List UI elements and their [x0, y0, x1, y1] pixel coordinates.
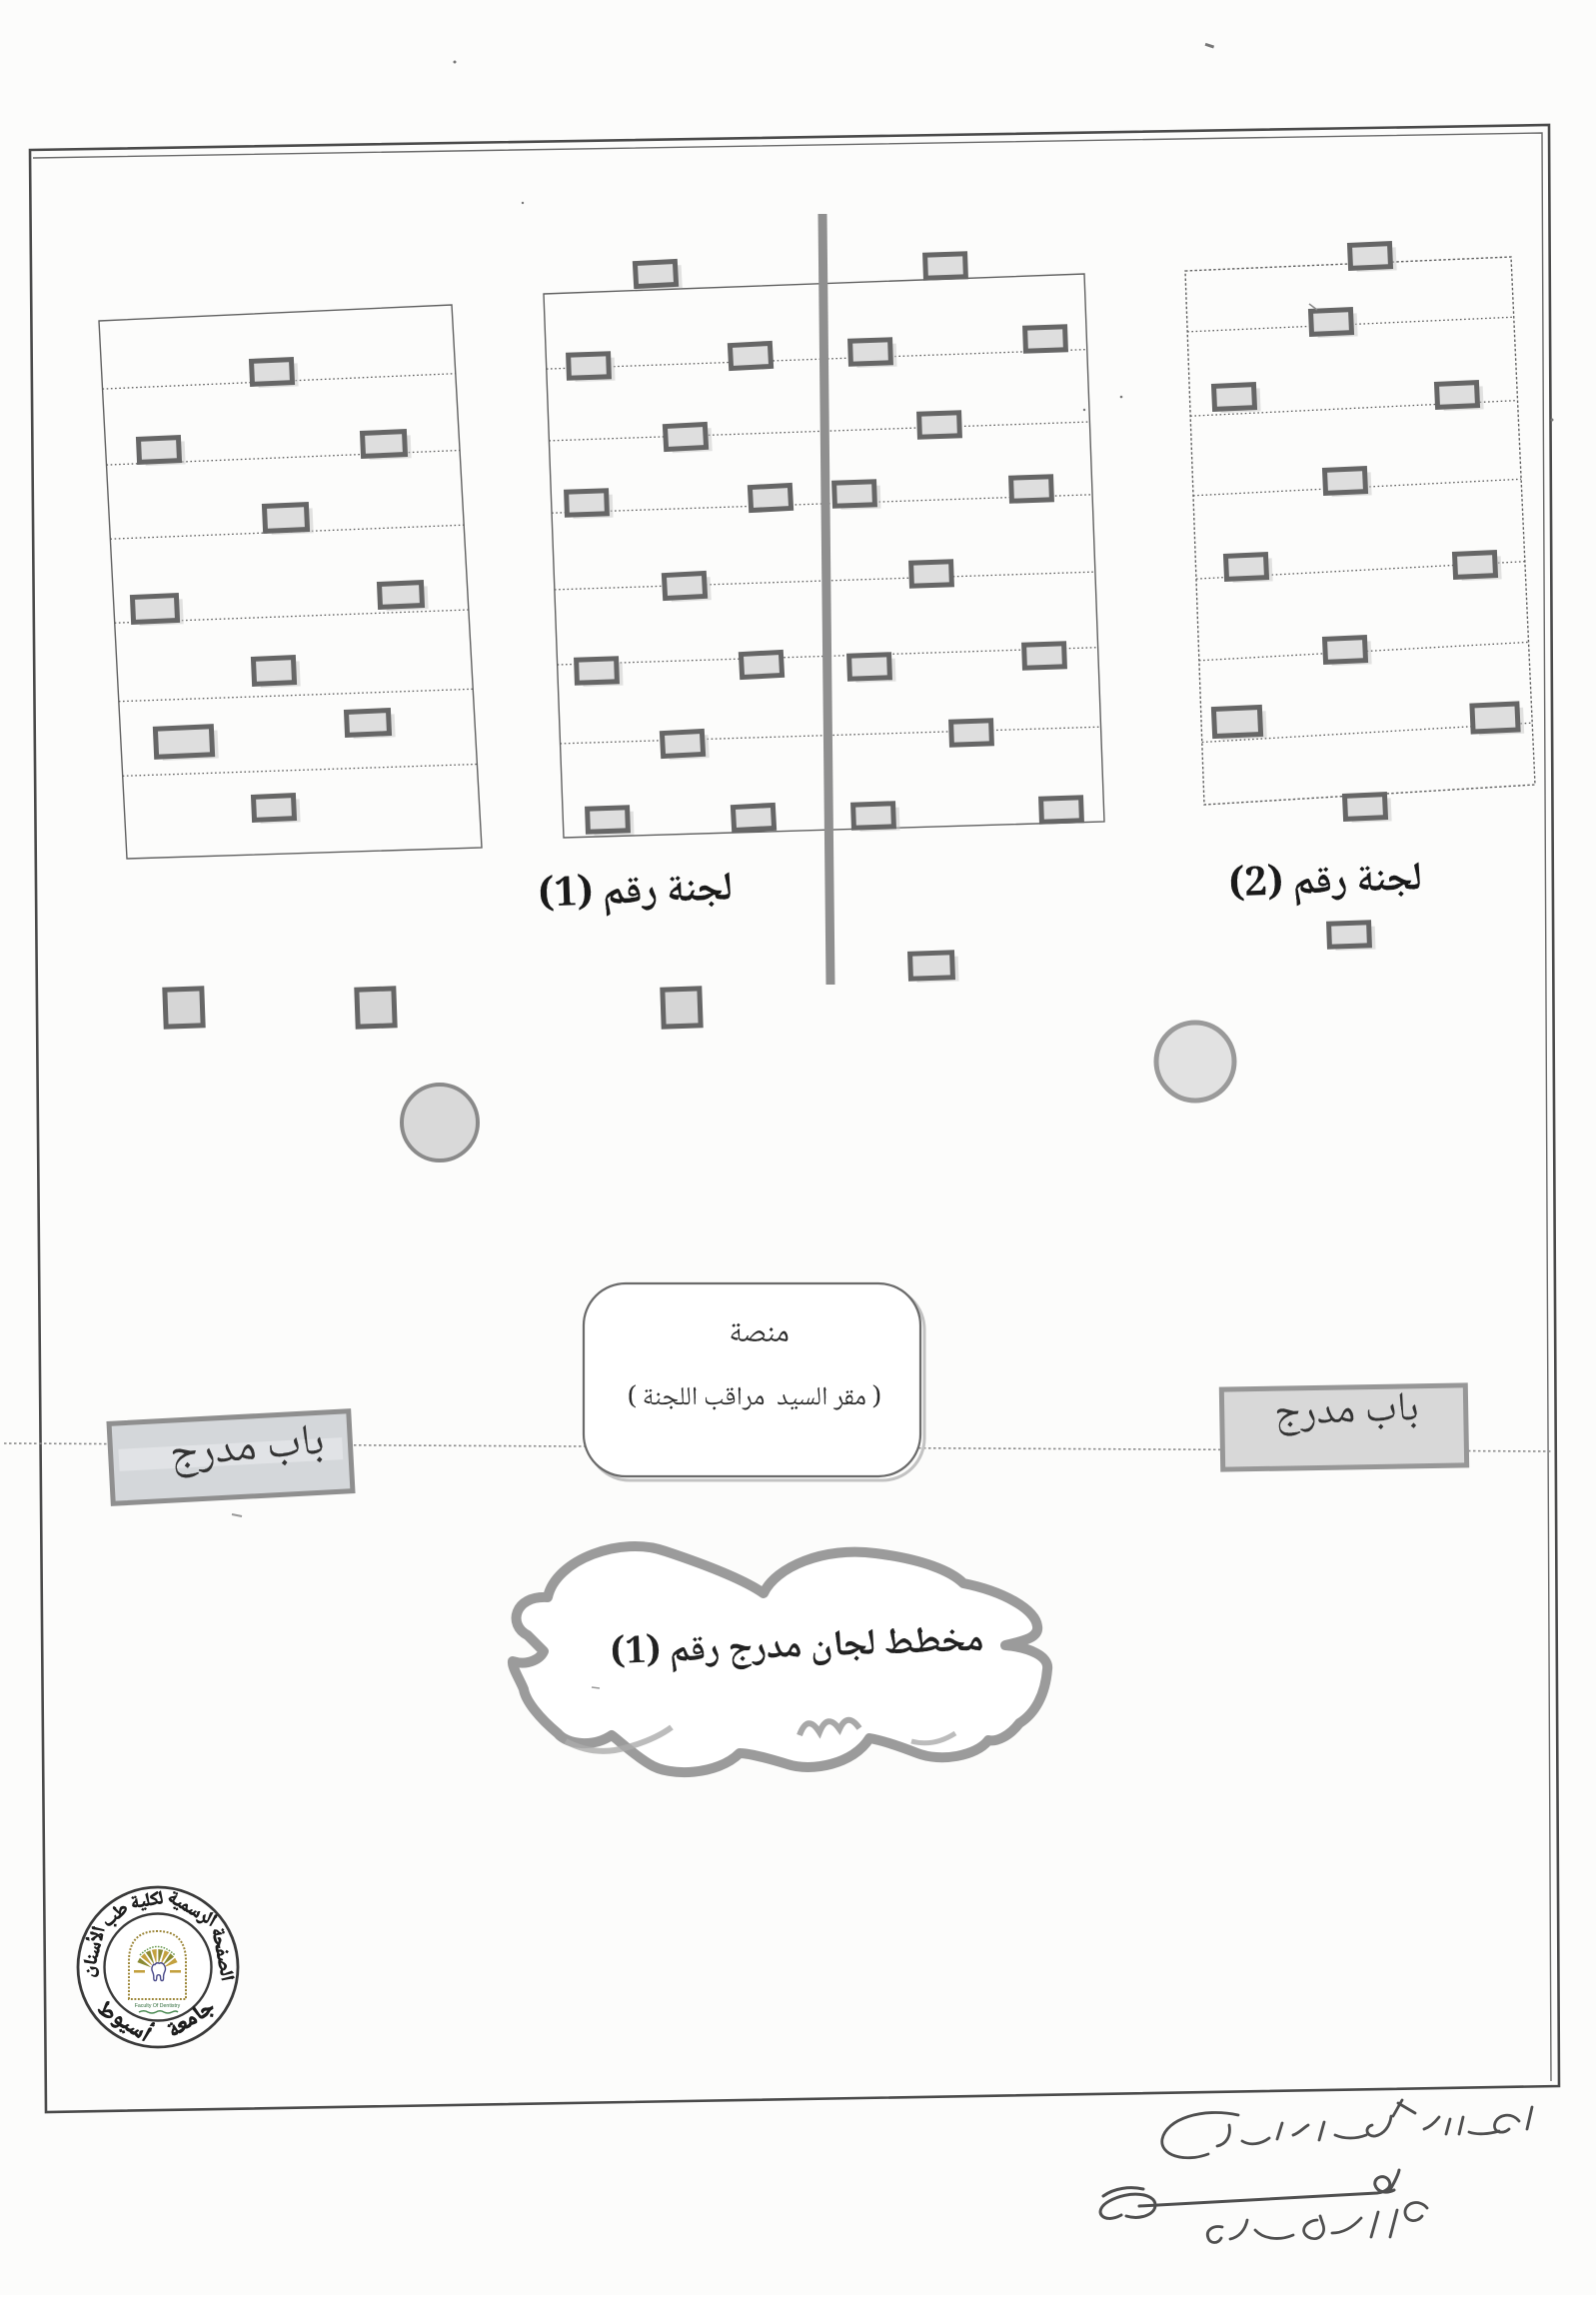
svg-text:Faculty Of Dentistry: Faculty Of Dentistry: [135, 2003, 181, 2009]
